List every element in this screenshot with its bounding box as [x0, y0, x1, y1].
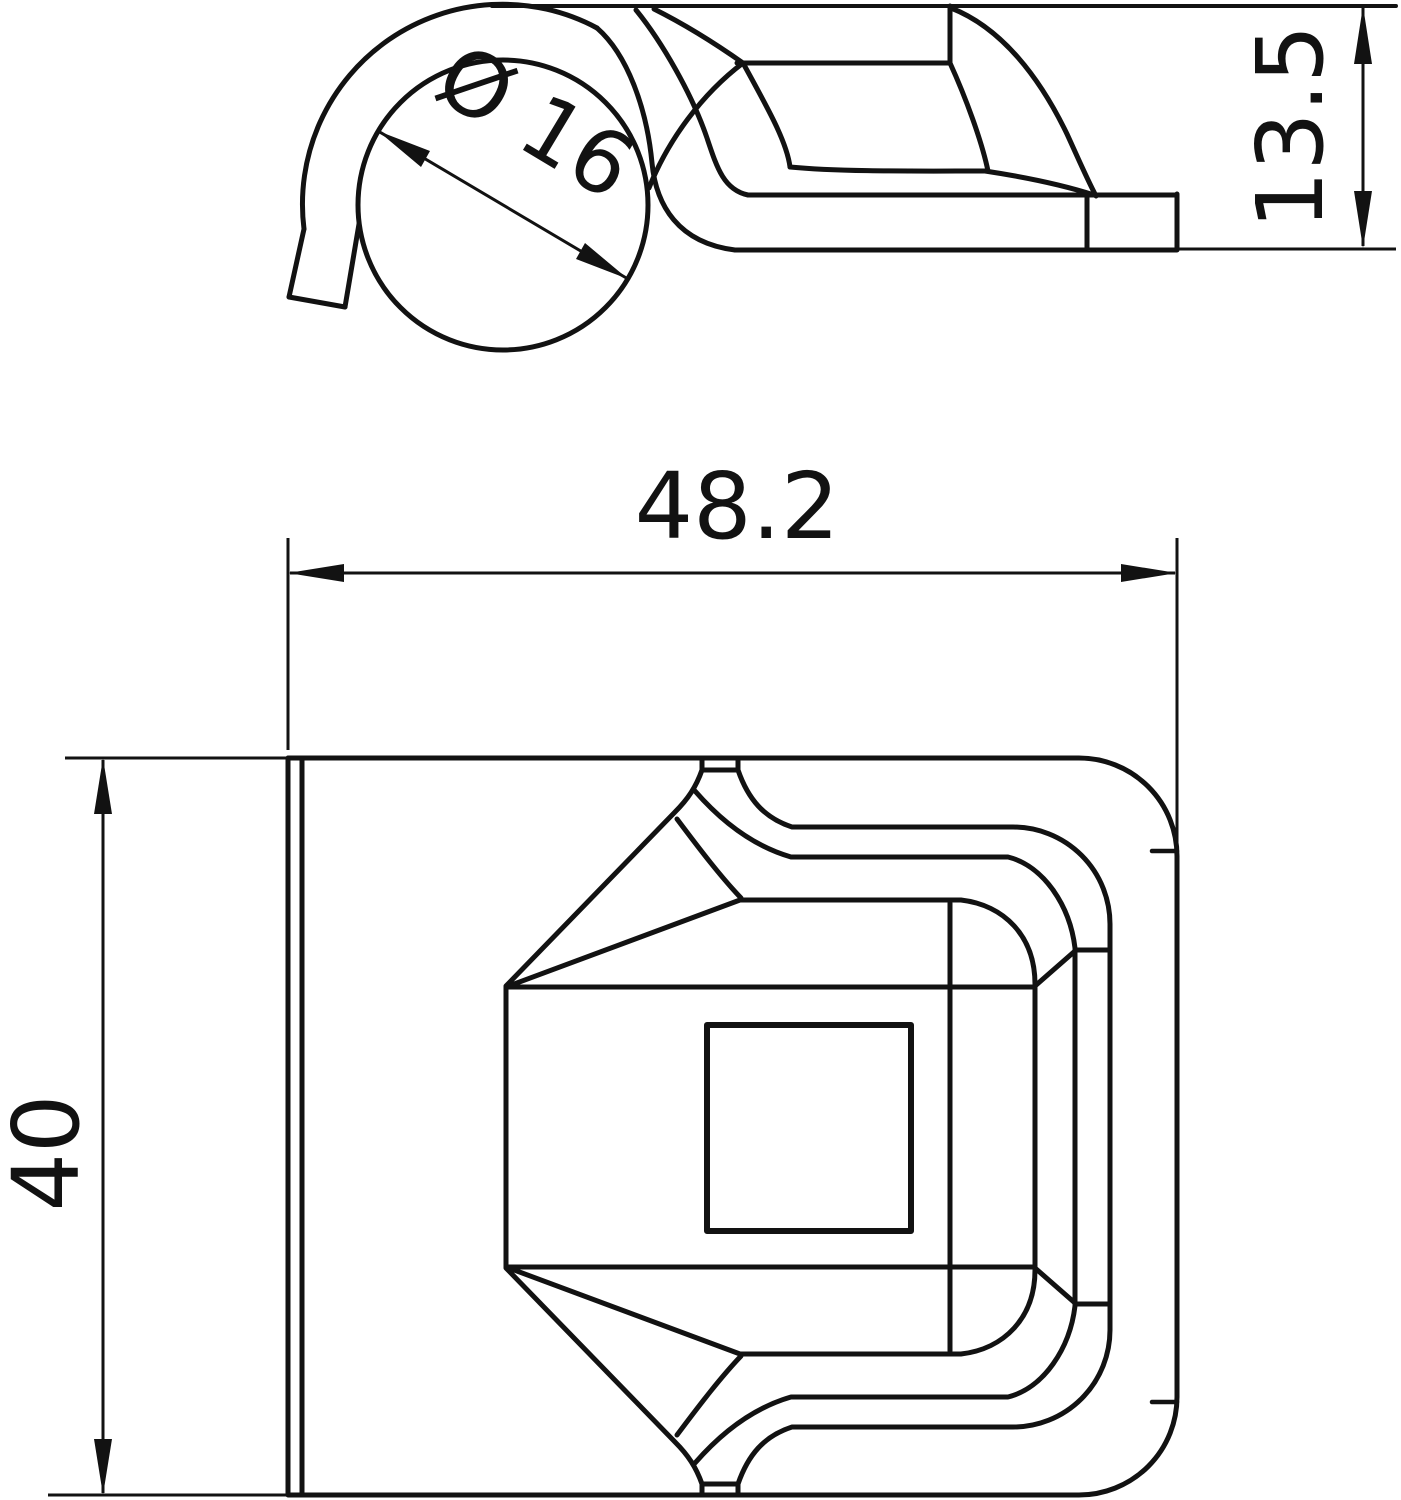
front-view — [288, 758, 1177, 1495]
boss-base-runout — [985, 171, 1094, 195]
boss-outer-contour-right — [738, 770, 1110, 1484]
curl-leg-end-cap — [289, 297, 345, 307]
ridge-left-inner-curve — [649, 63, 743, 188]
boss-right-inner-slope — [950, 63, 988, 171]
square-hole — [707, 1025, 911, 1231]
diameter-arrowhead-upper — [378, 131, 430, 167]
height-arrowhead-top — [1354, 6, 1372, 64]
length-arrowhead-top — [94, 758, 112, 814]
height-arrowhead-bottom — [1354, 191, 1372, 248]
boss-base-contour-line — [790, 167, 985, 171]
boss-corner-diagonal-bottom — [1035, 1268, 1075, 1303]
boss-outer-contour-left — [506, 770, 702, 1484]
width-ext-lines — [288, 538, 1177, 846]
plate-outline — [288, 758, 1177, 1495]
boss-left-inner-slope — [743, 63, 790, 167]
boss-corner-diagonal-top — [1035, 951, 1075, 986]
boss-top-face-edges — [506, 903, 1035, 1351]
curl-leg-outer-line — [289, 229, 304, 297]
boss-middle-petal-bottom — [677, 1356, 741, 1435]
technical-drawing: Ø 16 13.5 48.2 40 — [0, 0, 1401, 1500]
boss-middle-petal-top — [677, 819, 741, 898]
diameter-arrowhead-lower — [576, 243, 628, 279]
curl-leg-inner-line — [345, 224, 359, 307]
length-dim-label: 40 — [0, 1094, 100, 1211]
boss-middle-contour — [695, 791, 1075, 1463]
technical-drawing-page: Ø 16 13.5 48.2 40 — [0, 0, 1401, 1500]
ridge-right-outer-slope — [951, 8, 1096, 196]
width-dim-label: 48.2 — [635, 453, 840, 560]
width-arrowhead-right — [1121, 564, 1177, 582]
height-dim-label: 13.5 — [1237, 25, 1344, 230]
length-arrowhead-bottom — [94, 1439, 112, 1495]
dimension-labels: Ø 16 13.5 48.2 40 — [0, 24, 1344, 1212]
boss-inner-contour — [506, 900, 1035, 1354]
dimensions — [48, 6, 1396, 1495]
width-arrowhead-left — [288, 564, 344, 582]
